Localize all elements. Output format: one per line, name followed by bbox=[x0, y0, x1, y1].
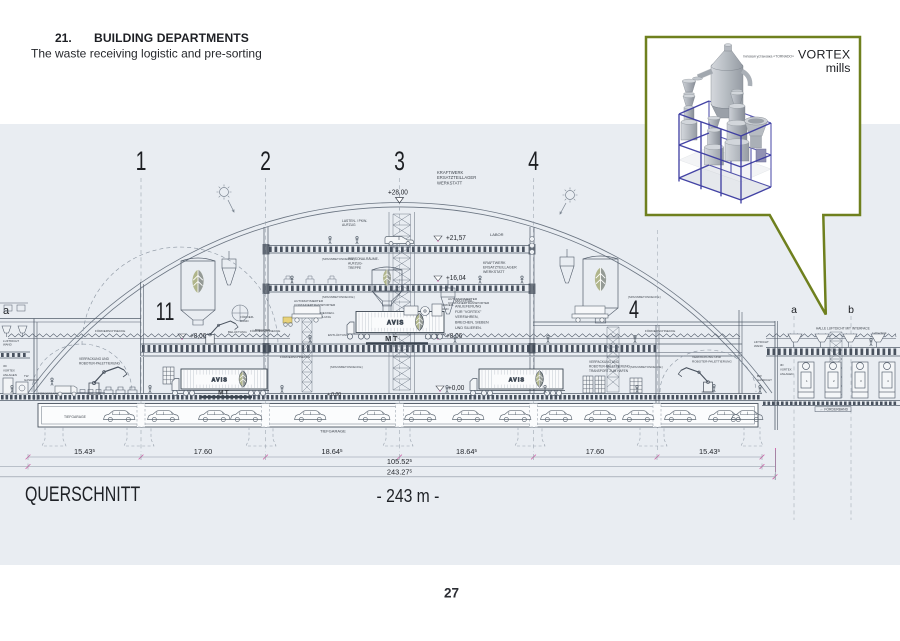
svg-text:ROBOTER-PALETTIERUNG: ROBOTER-PALETTIERUNG bbox=[79, 362, 121, 366]
svg-text:21.: 21. bbox=[55, 31, 72, 45]
svg-text:← FÖRDERBAND: ← FÖRDERBAND bbox=[820, 408, 849, 412]
svg-text:17.60: 17.60 bbox=[194, 447, 213, 456]
svg-text:VORTEX: VORTEX bbox=[3, 368, 15, 372]
svg-text:[SPANNBETONDECKE]: [SPANNBETONDECKE] bbox=[628, 295, 661, 299]
svg-text:GASDICHT: GASDICHT bbox=[757, 378, 772, 382]
svg-text:a: a bbox=[791, 304, 797, 316]
svg-text:KRAFTWERK: KRAFTWERK bbox=[483, 261, 506, 265]
svg-text:+8,06: +8,06 bbox=[190, 333, 207, 340]
svg-text:+28,00: +28,00 bbox=[388, 189, 408, 196]
svg-text:15.435: 15.435 bbox=[699, 447, 721, 456]
svg-text:GASDICHT: GASDICHT bbox=[24, 378, 39, 382]
svg-text:17.60: 17.60 bbox=[586, 447, 605, 456]
svg-text:The waste receiving logistic a: The waste receiving logistic and pre-sor… bbox=[31, 47, 262, 61]
svg-text:BUILDING DEPARTMENTS: BUILDING DEPARTMENTS bbox=[94, 31, 249, 45]
svg-text:FÖRDERSCHNECKE: FÖRDERSCHNECKE bbox=[95, 329, 125, 333]
svg-text:BRECHEN, SIEBEN: BRECHEN, SIEBEN bbox=[455, 321, 489, 325]
svg-text:3: 3 bbox=[394, 146, 405, 176]
svg-text:ENTLÜFTUNG: ENTLÜFTUNG bbox=[328, 333, 349, 337]
svg-text:TREPPE: TREPPE bbox=[348, 266, 362, 270]
svg-text:+21,57: +21,57 bbox=[446, 235, 466, 242]
svg-text:ANLAGEN: ANLAGEN bbox=[780, 372, 793, 376]
svg-text:FÖRDERSCHNECKE: FÖRDERSCHNECKE bbox=[280, 355, 310, 359]
svg-text:18.645: 18.645 bbox=[321, 447, 343, 456]
svg-text:LABOR: LABOR bbox=[490, 232, 504, 237]
svg-text:QUERSCHNITT: QUERSCHNITT bbox=[25, 482, 140, 506]
svg-text:[SPANNBETONDECKE]: [SPANNBETONDECKE] bbox=[322, 295, 355, 299]
svg-text:+16,04: +16,04 bbox=[446, 275, 466, 282]
svg-text:MT: MT bbox=[218, 390, 230, 397]
svg-text:+0,00: +0,00 bbox=[448, 385, 465, 392]
svg-text:VERPACKUNG UND: VERPACKUNG UND bbox=[692, 355, 722, 359]
svg-text:ROBOTER-PALETTIERUNG: ROBOTER-PALETTIERUNG bbox=[692, 360, 732, 364]
svg-text:AVIS: AVIS bbox=[509, 377, 525, 383]
svg-text:TIEFGARAGE: TIEFGARAGE bbox=[64, 415, 87, 419]
svg-text:VORTEX: VORTEX bbox=[780, 367, 792, 371]
svg-text:3D: 3D bbox=[780, 363, 784, 367]
svg-text:ANLAGEN: ANLAGEN bbox=[3, 373, 17, 377]
svg-text:2: 2 bbox=[260, 146, 271, 176]
svg-text:27: 27 bbox=[444, 586, 459, 601]
svg-text:VERPACKUNG UND: VERPACKUNG UND bbox=[589, 360, 620, 364]
svg-text:[SPANNBETONDECKE]: [SPANNBETONDECKE] bbox=[322, 257, 355, 261]
svg-text:FÖRDERSCHNECKE: FÖRDERSCHNECKE bbox=[645, 329, 675, 333]
svg-text:WERKSTATT: WERKSTATT bbox=[437, 180, 463, 185]
svg-text:105.525: 105.525 bbox=[387, 457, 413, 466]
svg-text:18.645: 18.645 bbox=[456, 447, 478, 456]
svg-text:UND SILIEREN.: UND SILIEREN. bbox=[455, 326, 482, 330]
svg-text:11: 11 bbox=[156, 297, 175, 326]
svg-text:WERKSTATT: WERKSTATT bbox=[483, 270, 505, 274]
svg-text:ROBOTER-PALETTIERUNG: ROBOTER-PALETTIERUNG bbox=[589, 365, 631, 369]
svg-text:ERSATZTEILLAGER: ERSATZTEILLAGER bbox=[483, 266, 517, 270]
svg-text:HALLE LUFTDICHT MIT INTERFACE: HALLE LUFTDICHT MIT INTERFACE bbox=[816, 327, 870, 331]
svg-text:AUFZUG: AUFZUG bbox=[342, 223, 356, 227]
svg-text:1: 1 bbox=[136, 146, 147, 176]
svg-text:TIEFGARAGE: TIEFGARAGE bbox=[320, 429, 346, 434]
svg-text:- 243 m -: - 243 m - bbox=[377, 485, 440, 507]
svg-text:mills: mills bbox=[826, 61, 851, 75]
svg-text:AUFZUG-: AUFZUG- bbox=[348, 261, 363, 265]
svg-text:4: 4 bbox=[629, 295, 639, 324]
svg-text:4: 4 bbox=[528, 146, 539, 176]
svg-text:WAND: WAND bbox=[3, 343, 12, 347]
svg-text:BELÜFTUNG: BELÜFTUNG bbox=[228, 330, 247, 334]
svg-text:типовая установка «TORNADO»: типовая установка «TORNADO» bbox=[743, 55, 794, 59]
svg-text:[SPANNBETONDECKE]: [SPANNBETONDECKE] bbox=[330, 365, 363, 369]
svg-text:MT: MT bbox=[385, 334, 399, 343]
svg-text:VERFAHREN,: VERFAHREN, bbox=[455, 315, 479, 319]
svg-text:AVIS: AVIS bbox=[211, 377, 227, 383]
svg-text:VERPACKUNG UND: VERPACKUNG UND bbox=[79, 357, 110, 361]
svg-text:TRANSPORT ZUM HAFEN: TRANSPORT ZUM HAFEN bbox=[589, 369, 629, 373]
svg-text:FÖRDERSCHNECKE: FÖRDERSCHNECKE bbox=[250, 329, 280, 333]
svg-text:AVIS: AVIS bbox=[387, 321, 405, 327]
svg-text:15.435: 15.435 bbox=[74, 447, 96, 456]
svg-text:3D: 3D bbox=[3, 364, 7, 368]
svg-text:CONTAINERTRANSPORTER: CONTAINERTRANSPORTER bbox=[448, 301, 490, 305]
svg-text:VORTEX: VORTEX bbox=[798, 47, 851, 61]
svg-text:+ 0,00: + 0,00 bbox=[327, 392, 341, 398]
svg-text:243.275: 243.275 bbox=[387, 467, 413, 476]
svg-text:b: b bbox=[848, 304, 854, 316]
svg-text:FÜR "VORTEX": FÜR "VORTEX" bbox=[455, 310, 482, 314]
svg-text:WAND: WAND bbox=[754, 344, 763, 348]
